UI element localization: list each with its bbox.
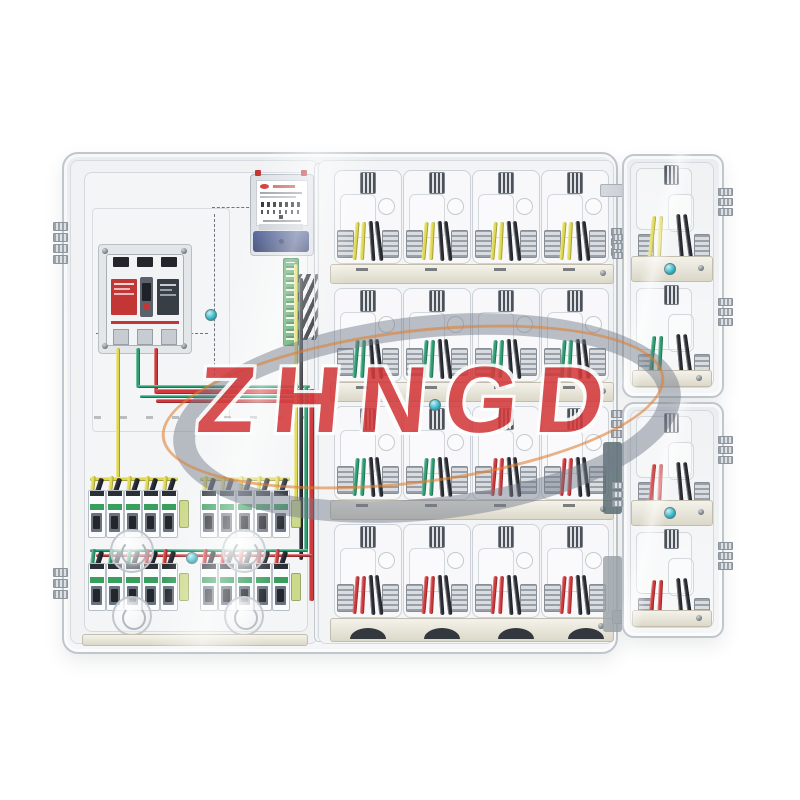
cell-terminal-block	[475, 230, 492, 258]
mcb-label-band	[144, 577, 158, 583]
cell-terminal-block	[520, 230, 537, 258]
mcb-toggle	[111, 589, 118, 602]
meter-register-digits	[261, 202, 303, 207]
mcb-terminal-cap	[202, 491, 216, 496]
mcb-toggle	[93, 589, 100, 602]
breaker-trip-indicator	[144, 304, 149, 310]
meter-logo-text-bar	[273, 185, 295, 188]
cover-latch-knob	[222, 529, 266, 573]
cell-latch-circle	[585, 552, 602, 569]
mcb-label-band	[256, 504, 270, 510]
mcb-unit	[272, 563, 290, 611]
rail-tick	[356, 268, 368, 271]
cell-terminal-block	[406, 466, 423, 494]
mcb-label-band	[90, 577, 104, 583]
mcb-label-band	[256, 577, 270, 583]
side-hinge-tab	[718, 436, 733, 444]
mcb-toggle	[129, 516, 136, 529]
mcb-unit	[254, 490, 272, 538]
cell-terminal-block	[451, 584, 468, 612]
side-band-screw	[698, 509, 704, 515]
main-breaker-mccb	[106, 254, 184, 346]
cell-latch-circle	[447, 552, 464, 569]
cell-terminal-block	[520, 348, 537, 376]
energy-meter	[250, 174, 314, 256]
mcb-label-band	[202, 577, 216, 583]
side-band-screw	[698, 265, 704, 271]
mcb-terminal-cap	[90, 491, 104, 496]
side-rail-screw	[696, 615, 702, 621]
wire-green-run	[138, 385, 310, 388]
cell-rib-tab	[498, 526, 514, 548]
group-end-block	[291, 500, 301, 528]
wire-yellow	[116, 348, 120, 478]
side-cell-rib-tab	[664, 529, 679, 549]
rail-tick	[494, 268, 506, 271]
mcb-terminal-cap	[90, 564, 104, 569]
rail-tick	[563, 504, 575, 507]
meter-body-ridge	[259, 224, 303, 230]
mcb-label-band	[108, 504, 122, 510]
meter-row-rail	[330, 382, 614, 402]
cell-latch-circle	[516, 316, 533, 333]
meter-row-rail	[330, 264, 614, 284]
label-line	[114, 293, 134, 295]
din-rail-tick-marks	[94, 416, 304, 419]
mcb-label-band	[144, 504, 158, 510]
cell-terminal-block	[589, 230, 606, 258]
side-hinge-tab	[718, 446, 733, 454]
breaker-top-terminal	[161, 257, 177, 267]
cell-latch-circle	[585, 198, 602, 215]
side-rail-screw	[696, 375, 702, 381]
mcb-terminal-cap	[126, 491, 140, 496]
cell-terminal-block	[475, 466, 492, 494]
cell-rib-tab	[360, 290, 376, 312]
rail-tick	[563, 268, 575, 271]
mcb-label-band	[162, 504, 176, 510]
cell-terminal-block	[451, 466, 468, 494]
cell-rib-tab	[567, 290, 583, 312]
cover-latch-knob	[224, 596, 264, 636]
cell-terminal-block	[544, 230, 561, 258]
side-cell-rib-tab	[664, 165, 679, 185]
meter-pulse-dot	[279, 215, 283, 219]
cell-latch-circle	[378, 198, 395, 215]
cell-terminal-block	[451, 230, 468, 258]
cell-terminal-block	[382, 230, 399, 258]
cell-terminal-block	[520, 466, 537, 494]
side-hinge-tab	[718, 308, 733, 316]
teal-screw	[186, 552, 198, 564]
side-hinge-tab	[718, 552, 733, 560]
cell-terminal-block	[337, 584, 354, 612]
teal-screw	[664, 263, 676, 275]
mcb-unit	[160, 563, 178, 611]
rail-tick	[563, 386, 575, 389]
side-cell-rib-tab	[664, 413, 679, 433]
mcb-label-band	[90, 504, 104, 510]
wire-green	[136, 348, 140, 388]
meter-terminal-cover	[253, 231, 309, 252]
cell-latch-circle	[516, 198, 533, 215]
side-hinge-tab	[718, 456, 733, 464]
rail-screw	[600, 388, 606, 394]
mcb-label-band	[126, 504, 140, 510]
cell-latch-circle	[378, 434, 395, 451]
cell-terminal-block	[382, 584, 399, 612]
wire-green-run	[140, 395, 310, 398]
layout-dash-horizontal	[212, 207, 254, 208]
mcb-toggle	[223, 589, 230, 602]
breaker-toggle	[142, 283, 151, 301]
label-line	[114, 288, 130, 290]
cell-terminal-block	[451, 348, 468, 376]
mcb-toggle	[147, 516, 154, 529]
mcb-toggle	[277, 516, 284, 529]
label-line	[160, 294, 176, 296]
mcb-label-band	[274, 577, 288, 583]
cell-rib-tab	[429, 526, 445, 548]
rail-tick	[425, 268, 437, 271]
mcb-label-band	[220, 504, 234, 510]
breaker-top-terminal	[113, 257, 129, 267]
group-end-block	[291, 573, 301, 601]
side-hinge-tab	[718, 198, 733, 206]
mcb-terminal-cap	[256, 491, 270, 496]
meter-text-line	[260, 192, 302, 194]
mcb-terminal-cap	[220, 491, 234, 496]
side-hinge-tab	[718, 318, 733, 326]
group-end-block	[179, 573, 189, 601]
group-end-block	[179, 500, 189, 528]
teal-screw	[429, 399, 441, 411]
hinge-tab	[53, 244, 68, 253]
mcb-toggle	[165, 516, 172, 529]
cell-terminal-block	[337, 348, 354, 376]
rail-screw	[600, 270, 606, 276]
mcb-toggle	[205, 516, 212, 529]
mcb-unit	[142, 490, 160, 538]
cell-terminal-block	[406, 348, 423, 376]
breaker-toggle-well	[140, 277, 153, 317]
mcb-label-band	[108, 577, 122, 583]
meter-text-line	[260, 196, 296, 198]
mcb-toggle	[93, 516, 100, 529]
cell-latch-circle	[447, 198, 464, 215]
cell-rib-tab	[567, 172, 583, 194]
mcb-label-band	[126, 577, 140, 583]
rail-tick	[494, 386, 506, 389]
cell-terminal-block	[337, 466, 354, 494]
meter-faceplate	[256, 180, 308, 226]
cell-latch-circle	[516, 552, 533, 569]
side-cell-rib-tab	[664, 285, 679, 305]
cell-rib-tab	[498, 408, 514, 430]
mcb-toggle	[205, 589, 212, 602]
mcb-terminal-cap	[162, 564, 176, 569]
mcb-label-band	[274, 504, 288, 510]
left-panel-bottom-rail	[82, 634, 308, 646]
side-terminal-block	[694, 234, 710, 258]
meter-seal-red	[255, 170, 261, 176]
side-left-tab	[612, 252, 623, 259]
mcb-label-band	[220, 577, 234, 583]
side-hinge-tab	[718, 188, 733, 196]
product-photo: ZHNGD	[0, 0, 800, 800]
teal-screw	[205, 309, 217, 321]
background-strip-gray	[603, 556, 622, 632]
cell-latch-circle	[585, 434, 602, 451]
cell-rib-tab	[567, 526, 583, 548]
mcb-terminal-cap	[162, 491, 176, 496]
cell-terminal-block	[520, 584, 537, 612]
mcb-terminal-cap	[238, 491, 252, 496]
mcb-unit	[200, 490, 218, 538]
side-left-tab	[612, 500, 623, 507]
cell-latch-circle	[447, 316, 464, 333]
teal-screw	[664, 507, 676, 519]
mcb-terminal-cap	[274, 491, 288, 496]
side-hinge-tab	[718, 542, 733, 550]
cell-terminal-block	[382, 348, 399, 376]
cell-rib-tab	[429, 408, 445, 430]
rail-tick	[425, 386, 437, 389]
cell-rib-tab	[498, 290, 514, 312]
mcb-label-band	[162, 577, 176, 583]
rail-tick	[494, 504, 506, 507]
meter-bottom-text-line	[263, 220, 301, 222]
cell-latch-circle	[378, 552, 395, 569]
hinge-tab	[53, 568, 68, 577]
mcb-unit	[160, 490, 178, 538]
hinge-tab	[53, 233, 68, 242]
breaker-top-terminal	[137, 257, 153, 267]
mcb-toggle	[165, 589, 172, 602]
mcb-terminal-cap	[108, 491, 122, 496]
mcb-toggle	[259, 516, 266, 529]
cell-terminal-block	[544, 466, 561, 494]
breaker-spec-label	[157, 279, 179, 315]
mcb-terminal-cap	[202, 564, 216, 569]
cell-rib-tab	[567, 408, 583, 430]
mcb-unit	[88, 490, 106, 538]
cell-terminal-block	[589, 348, 606, 376]
mcb-label-band	[238, 504, 252, 510]
terminal-cover-screw	[279, 239, 284, 244]
cell-terminal-block	[406, 584, 423, 612]
cell-latch-circle	[585, 316, 602, 333]
side-left-tab	[612, 482, 623, 489]
cell-rib-tab	[360, 526, 376, 548]
hinge-tab	[53, 255, 68, 264]
side-hinge-tab	[718, 208, 733, 216]
cell-latch-circle	[516, 434, 533, 451]
side-hinge-tab	[718, 298, 733, 306]
label-line	[160, 284, 176, 286]
rail-tick	[425, 504, 437, 507]
mcb-terminal-cap	[144, 491, 158, 496]
meter-register-digits-small	[261, 210, 303, 214]
cell-terminal-block	[406, 230, 423, 258]
mcb-label-band	[202, 504, 216, 510]
breaker-bottom-clamp	[161, 329, 177, 345]
side-hinge-tab	[718, 562, 733, 570]
cell-rib-tab	[429, 172, 445, 194]
mcb-label-band	[238, 577, 252, 583]
hinge-tab	[53, 579, 68, 588]
plate-screw	[181, 248, 187, 254]
label-line	[160, 289, 172, 291]
cell-terminal-block	[475, 348, 492, 376]
meter-row-rail	[330, 500, 614, 520]
rail-tick	[356, 504, 368, 507]
wire-red-run	[156, 389, 316, 394]
mcb-toggle	[259, 589, 266, 602]
breaker-red-stripe	[111, 321, 179, 324]
mcb-unit	[200, 563, 218, 611]
mcb-toggle	[241, 516, 248, 529]
breaker-bottom-clamp	[113, 329, 129, 345]
cell-latch-circle	[378, 316, 395, 333]
rail-tick	[356, 386, 368, 389]
meter-logo-oval	[260, 184, 269, 189]
mcb-unit	[88, 563, 106, 611]
label-line	[114, 283, 134, 285]
mcb-toggle	[223, 516, 230, 529]
side-left-tab	[612, 491, 623, 498]
mcb-toggle	[277, 589, 284, 602]
mcb-unit	[272, 490, 290, 538]
bundle-green	[304, 386, 308, 552]
hinge-tab	[53, 222, 68, 231]
layout-dash-vertical	[214, 214, 215, 376]
mcb-toggle	[111, 516, 118, 529]
cell-terminal-block	[475, 584, 492, 612]
cell-terminal-block	[382, 466, 399, 494]
cell-rib-tab	[360, 172, 376, 194]
cell-terminal-block	[337, 230, 354, 258]
cell-terminal-block	[544, 584, 561, 612]
wire-red-run	[156, 399, 316, 403]
cover-latch-knob	[112, 596, 152, 636]
plate-screw	[102, 248, 108, 254]
hinge-tab	[53, 590, 68, 599]
cover-latch-knob	[110, 529, 154, 573]
side-left-tab	[612, 243, 623, 250]
cell-rib-tab	[360, 408, 376, 430]
cell-rib-tab	[498, 172, 514, 194]
bundle-yellow	[294, 264, 298, 504]
mcb-terminal-cap	[274, 564, 288, 569]
cell-rib-tab	[429, 290, 445, 312]
mcb-toggle	[147, 589, 154, 602]
meter-seal-red	[301, 170, 307, 176]
cell-latch-circle	[447, 434, 464, 451]
breaker-red-label	[111, 279, 137, 315]
cell-terminal-block	[544, 348, 561, 376]
side-left-tab	[612, 234, 623, 241]
breaker-bottom-clamp	[137, 329, 153, 345]
